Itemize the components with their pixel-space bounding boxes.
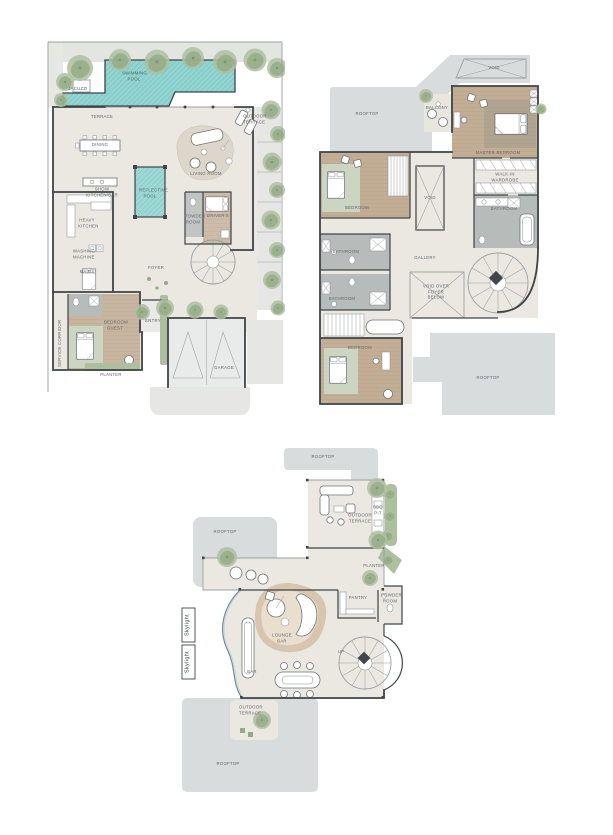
ground-floor-plan: JACUZZI SWIMMING POOL TERRACE OUTDOOR TE… — [45, 32, 285, 417]
roof-dining-table — [275, 662, 320, 699]
bed — [327, 172, 344, 199]
roof-floor-drawing — [178, 446, 423, 806]
master-bathroom — [474, 195, 538, 248]
maids-bed — [82, 269, 96, 290]
living-room-rug — [177, 126, 233, 180]
lounge-bar — [255, 583, 326, 652]
guest-bedroom — [68, 294, 140, 370]
bedroom-upper — [320, 152, 410, 218]
bbq-pit — [372, 496, 384, 534]
maids-room — [82, 269, 96, 290]
driveway — [150, 387, 250, 415]
roof-floor-plan: ROOFTOP ROOFTOP ROOFTOP OUTDOOR TERRACE … — [178, 446, 423, 806]
bedroom-lower — [320, 338, 402, 404]
bathroom-1 — [320, 234, 390, 270]
skylight-shafts — [182, 608, 195, 679]
master-bedroom — [452, 86, 538, 158]
bed — [329, 357, 346, 384]
drivers-bed — [206, 197, 228, 211]
first-floor-drawing — [312, 52, 564, 424]
show-kitchen-island — [83, 178, 117, 186]
spiral-staircase — [468, 253, 528, 313]
drivers-room — [185, 192, 231, 244]
ground-floor-drawing — [45, 32, 285, 417]
rooftop-lower — [413, 333, 555, 415]
spiral-staircase — [191, 240, 235, 284]
master-bed — [495, 114, 527, 135]
first-floor-plan: VOID ROOFTOP BALCONY MASTER BEDROOM WALK… — [312, 52, 564, 424]
spiral-staircase — [339, 637, 391, 689]
guest-bed — [76, 333, 93, 360]
bathroom-2 — [320, 274, 390, 310]
bar-counter — [242, 618, 254, 678]
rooftop-top — [284, 448, 378, 483]
reflective-pool — [133, 165, 167, 219]
garage — [150, 318, 283, 415]
